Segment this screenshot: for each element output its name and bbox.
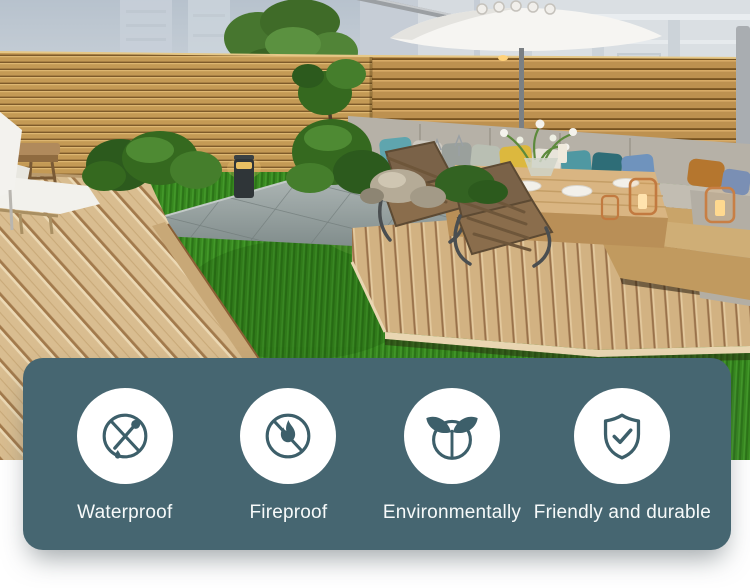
feature-waterproof: Waterproof — [43, 358, 207, 550]
feature-environmentally: Environmentally — [370, 358, 534, 550]
feature-durable: Friendly and durable — [534, 358, 711, 550]
no-water-dropper-icon — [94, 405, 156, 467]
icon-circle — [404, 388, 500, 484]
fence-light — [498, 55, 508, 61]
shield-check-icon — [591, 405, 653, 467]
feature-label: Fireproof — [249, 503, 327, 524]
icon-circle — [574, 388, 670, 484]
icon-circle — [77, 388, 173, 484]
bench-lantern — [706, 188, 734, 222]
icon-circle — [240, 388, 336, 484]
feature-fireproof: Fireproof — [207, 358, 371, 550]
feature-label: Waterproof — [77, 503, 172, 524]
no-fire-icon — [257, 405, 319, 467]
candle — [558, 144, 567, 163]
feature-label: Environmentally — [383, 503, 521, 524]
feature-panel: Waterproof Fireproof Environmentally — [23, 358, 731, 550]
eco-plant-icon — [421, 405, 483, 467]
feature-label: Friendly and durable — [534, 503, 711, 524]
